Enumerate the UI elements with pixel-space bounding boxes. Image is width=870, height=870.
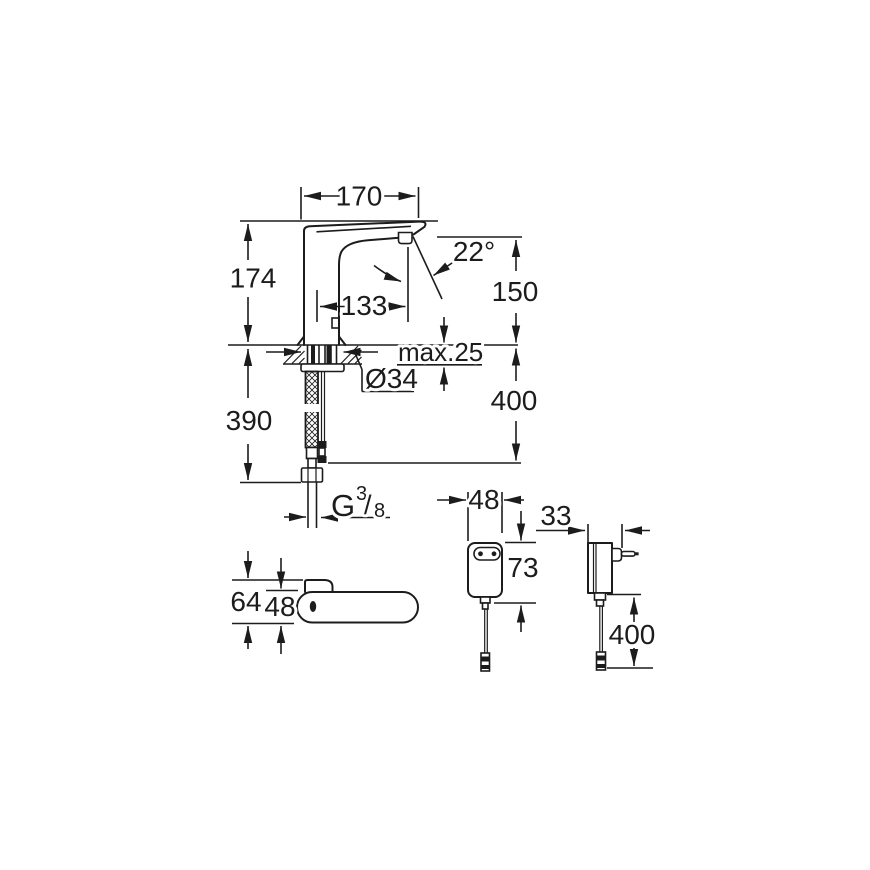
dim-label-spout-reach: 133 xyxy=(341,290,388,321)
strain-relief xyxy=(595,593,606,600)
dim-height-to-spout-top: 174 xyxy=(230,224,277,342)
dim-label-adapter-width: 48 xyxy=(468,484,499,515)
dim-label-outlet-height: 150 xyxy=(492,276,539,307)
cable-connector-band xyxy=(597,664,606,668)
dim-label-height: 174 xyxy=(230,263,277,294)
thread-prefix: G xyxy=(331,488,355,523)
stream-angle-line xyxy=(413,237,442,300)
adapter-side-view xyxy=(588,543,639,670)
thread-denominator: 8 xyxy=(374,500,385,522)
sensor-dot xyxy=(310,601,316,612)
cable-connector-band xyxy=(597,656,606,661)
dim-label-adapter-height: 73 xyxy=(507,552,538,583)
connection-tube xyxy=(308,482,317,528)
dim-spout-angle: 22° xyxy=(374,236,495,282)
mounting-washer xyxy=(301,364,344,372)
hose-fitting-neck xyxy=(308,459,316,469)
dim-label-cable-length: 400 xyxy=(491,385,538,416)
aerator-outlet xyxy=(399,233,413,244)
plug-base xyxy=(612,549,622,562)
hose-nut xyxy=(302,468,323,482)
faucet-top-view xyxy=(297,580,418,623)
plug-pin-tip xyxy=(635,552,639,555)
dim-hose-length: 390 xyxy=(226,349,301,483)
angle-arc-arrow xyxy=(374,266,401,282)
hose-fitting xyxy=(307,448,318,459)
drawing-canvas: 170 174 390 150 400 133 max.25 xyxy=(0,0,870,870)
dim-cable-length-below-deck: 400 xyxy=(491,349,538,461)
dim-adapter-width: 48 xyxy=(437,484,524,541)
socket-hole-right xyxy=(492,551,497,556)
dim-label-hole-diameter: Ø34 xyxy=(365,363,418,394)
socket-hole-left xyxy=(478,551,483,556)
dim-top-body-depth: 48 xyxy=(264,558,298,654)
adapter-side-body xyxy=(588,543,612,593)
technical-drawing: 170 174 390 150 400 133 max.25 xyxy=(0,0,870,870)
cable-connector-band xyxy=(481,665,490,669)
angle-leader xyxy=(434,261,456,276)
dim-adapter-cable-length: 400 xyxy=(607,595,655,669)
strain-relief-neck xyxy=(483,603,489,609)
deck-hatching xyxy=(284,346,362,364)
dim-label-spout-angle: 22° xyxy=(453,236,495,267)
dim-label-body-depth: 48 xyxy=(264,591,295,622)
adapter-front-view xyxy=(468,543,502,671)
cable-plug-body xyxy=(319,448,325,456)
spout-tab-outline xyxy=(305,580,333,592)
adapter-front-body xyxy=(468,543,502,597)
cable-connector-band xyxy=(481,657,490,662)
cable-plug-tip xyxy=(318,456,327,463)
strain-relief-neck xyxy=(597,600,604,606)
dim-label-hose-length: 390 xyxy=(226,405,273,436)
hose-break-gap xyxy=(302,404,322,412)
dim-label-adapter-depth: 33 xyxy=(540,500,571,531)
cable-plug-cap xyxy=(318,441,327,448)
dim-label-overall-depth: 64 xyxy=(230,586,261,617)
mounting-shank xyxy=(308,345,337,364)
dim-adapter-depth: 33 xyxy=(536,500,650,548)
dim-label-spout-projection: 170 xyxy=(336,181,383,212)
strain-relief xyxy=(481,597,491,603)
dim-label-adapter-cable-length: 400 xyxy=(609,619,656,650)
thread-slash: / xyxy=(364,490,372,520)
dim-thread-size: G 3 / 8 xyxy=(284,483,390,523)
plug-pin xyxy=(622,552,636,557)
dim-spout-projection: 170 xyxy=(301,181,419,220)
